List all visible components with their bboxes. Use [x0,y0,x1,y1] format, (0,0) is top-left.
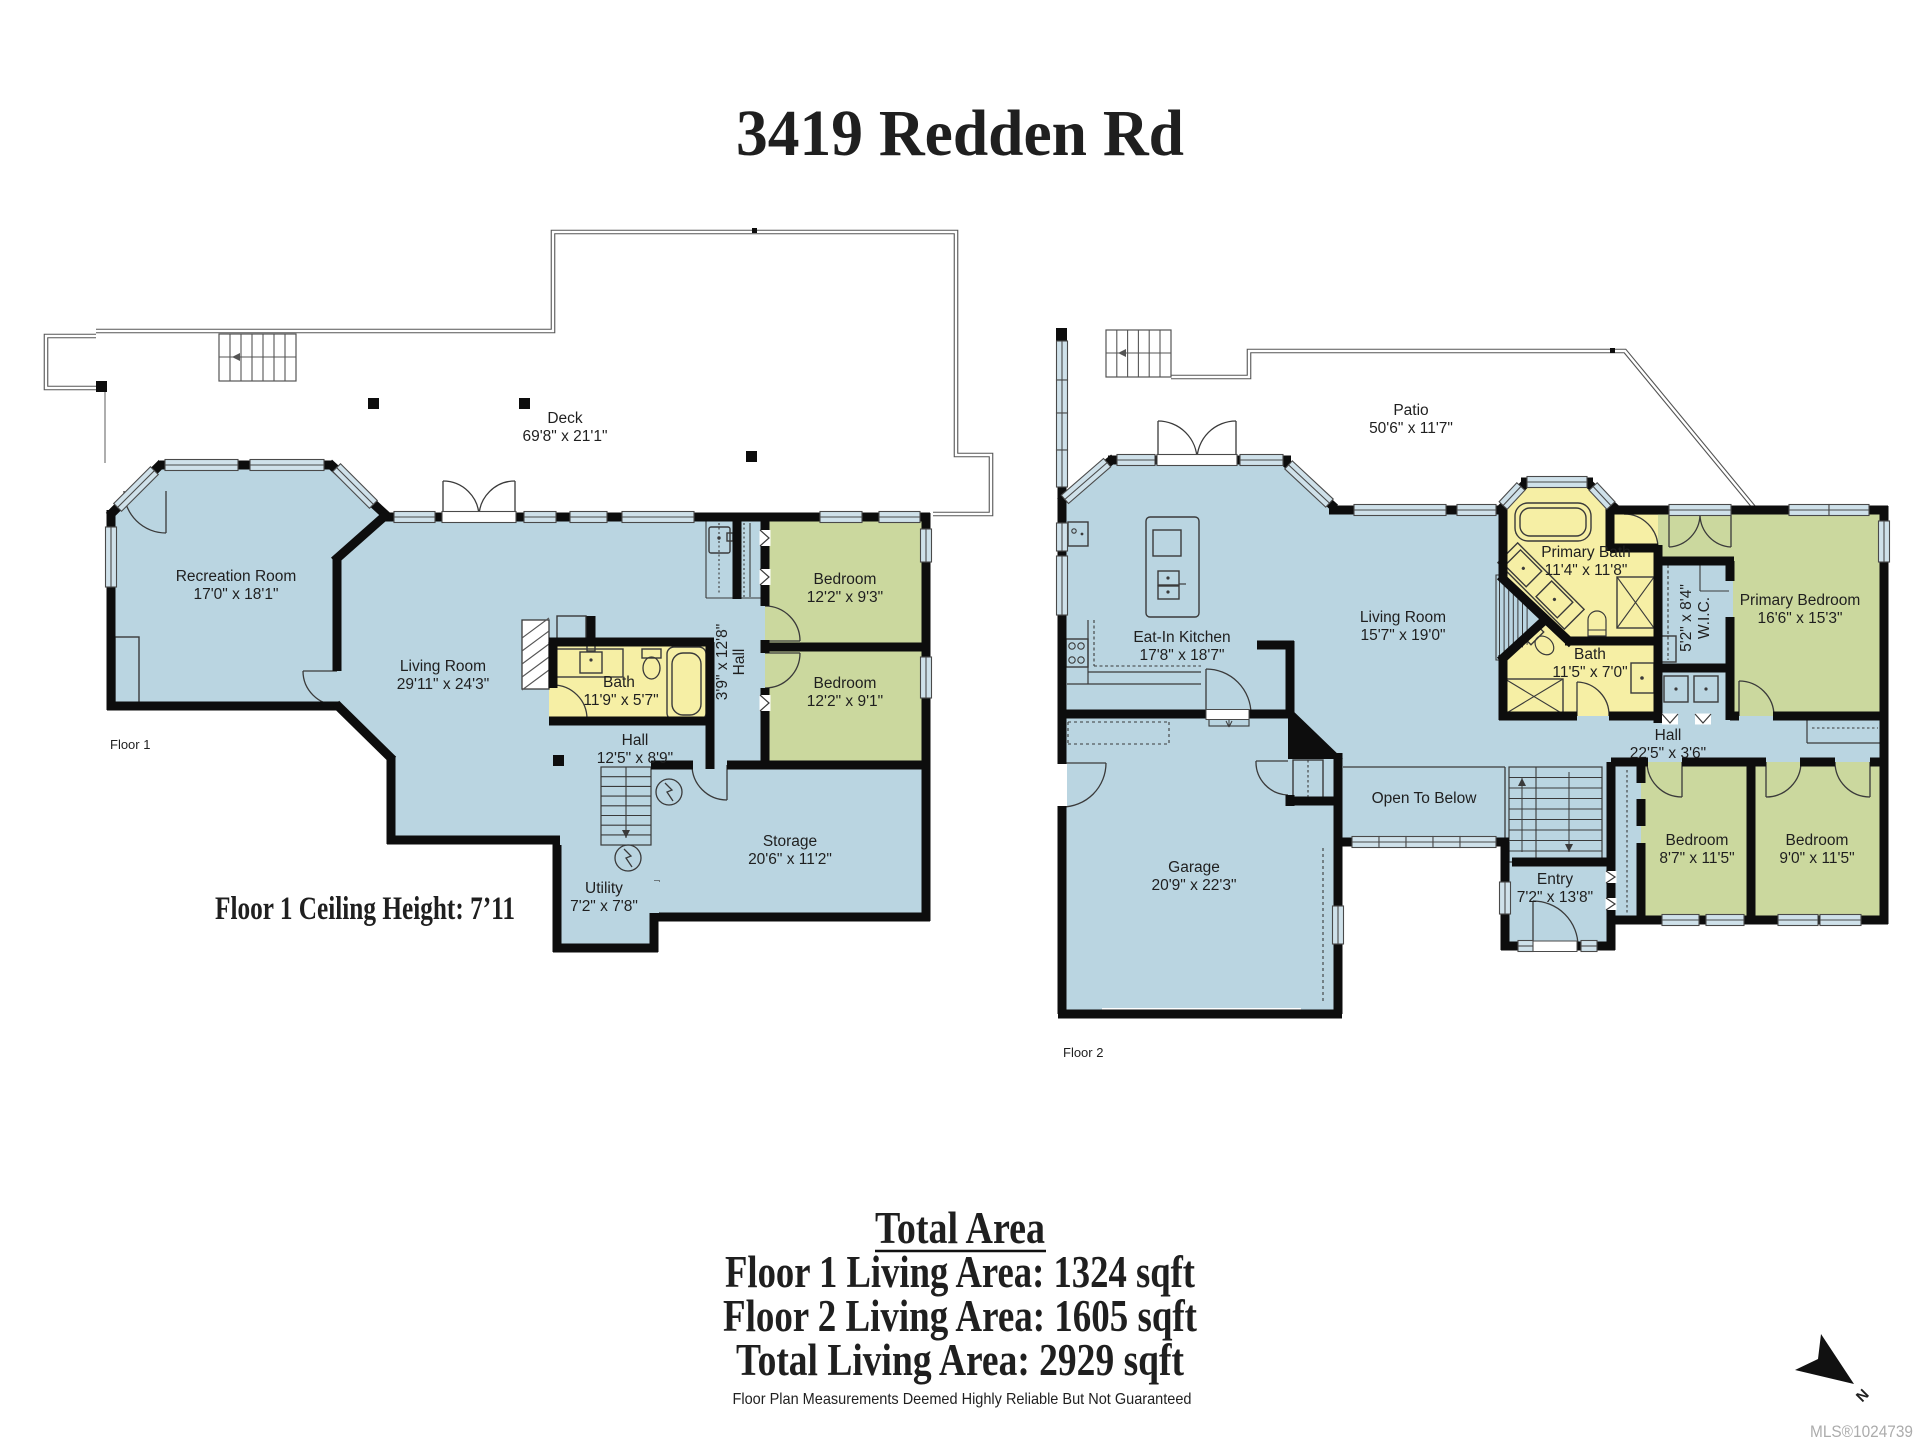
svg-text:Hall: Hall [622,732,649,749]
svg-text:Bath: Bath [1574,646,1606,663]
svg-text:Hall: Hall [1655,727,1682,744]
svg-text:69'8" x 21'1": 69'8" x 21'1" [522,428,607,445]
svg-text:Floor Plan Measurements Deemed: Floor Plan Measurements Deemed Highly Re… [733,1391,1192,1408]
svg-text:Bath: Bath [603,674,635,691]
svg-text:Eat-In Kitchen: Eat-In Kitchen [1133,629,1230,646]
svg-text:29'11" x 24'3": 29'11" x 24'3" [397,676,489,693]
svg-text:3'9" x 12'8": 3'9" x 12'8" [714,624,731,700]
svg-text:Bedroom: Bedroom [1666,832,1729,849]
svg-text:22'5" x 3'6": 22'5" x 3'6" [1630,745,1706,762]
svg-text:Primary Bath: Primary Bath [1541,544,1631,561]
svg-text:Living Room: Living Room [1360,609,1446,626]
svg-text:15'7" x 19'0": 15'7" x 19'0" [1360,627,1445,644]
svg-text:12'2" x 9'1": 12'2" x 9'1" [807,693,883,710]
svg-text:16'6" x 15'3": 16'6" x 15'3" [1757,610,1842,627]
svg-text:Recreation Room: Recreation Room [176,568,297,585]
svg-text:Entry: Entry [1537,871,1573,888]
svg-text:7'2" x 13'8": 7'2" x 13'8" [1517,889,1593,906]
svg-text:Total Living Area: 2929 sqft: Total Living Area: 2929 sqft [736,1334,1185,1385]
svg-text:Deck: Deck [547,410,583,427]
svg-text:Hall: Hall [731,649,748,676]
svg-text:Floor 1 Ceiling Height: 7’11: Floor 1 Ceiling Height: 7’11 [215,891,515,927]
svg-text:Storage: Storage [763,833,817,850]
svg-text:Bedroom: Bedroom [814,571,877,588]
svg-text:Bedroom: Bedroom [814,675,877,692]
svg-text:9'0" x 11'5": 9'0" x 11'5" [1779,850,1854,867]
svg-text:11'5" x 7'0": 11'5" x 7'0" [1552,664,1627,681]
svg-text:7'2" x 7'8": 7'2" x 7'8" [570,898,638,915]
svg-text:17'8" x 18'7": 17'8" x 18'7" [1139,647,1224,664]
svg-text:MLS®1024739: MLS®1024739 [1810,1423,1913,1440]
svg-text:12'5" x 8'9": 12'5" x 8'9" [597,750,673,767]
svg-text:12'2" x 9'3": 12'2" x 9'3" [807,589,883,606]
svg-text:8'7" x 11'5": 8'7" x 11'5" [1659,850,1734,867]
svg-text:Garage: Garage [1168,859,1220,876]
svg-text:Floor 2: Floor 2 [1063,1045,1103,1060]
svg-text:20'9" x 22'3": 20'9" x 22'3" [1151,877,1236,894]
svg-text:Utility: Utility [585,880,623,897]
svg-text:11'4" x 11'8": 11'4" x 11'8" [1545,562,1628,579]
svg-text:50'6" x 11'7": 50'6" x 11'7" [1369,420,1453,437]
svg-text:Open To Below: Open To Below [1372,790,1478,807]
svg-text:20'6" x 11'2": 20'6" x 11'2" [748,851,832,868]
svg-text:3419 Redden Rd: 3419 Redden Rd [736,97,1184,170]
svg-text:Patio: Patio [1393,402,1428,419]
svg-text:11'9" x 5'7": 11'9" x 5'7" [583,692,658,709]
svg-text:Living Room: Living Room [400,658,486,675]
svg-text:W.I.C.: W.I.C. [1696,597,1713,639]
svg-text:Primary Bedroom: Primary Bedroom [1740,592,1861,609]
svg-text:Bedroom: Bedroom [1786,832,1849,849]
svg-text:5'2" x 8'4": 5'2" x 8'4" [1678,584,1695,652]
svg-text:17'0" x 18'1": 17'0" x 18'1" [193,586,278,603]
svg-text:Floor 1: Floor 1 [110,737,150,752]
